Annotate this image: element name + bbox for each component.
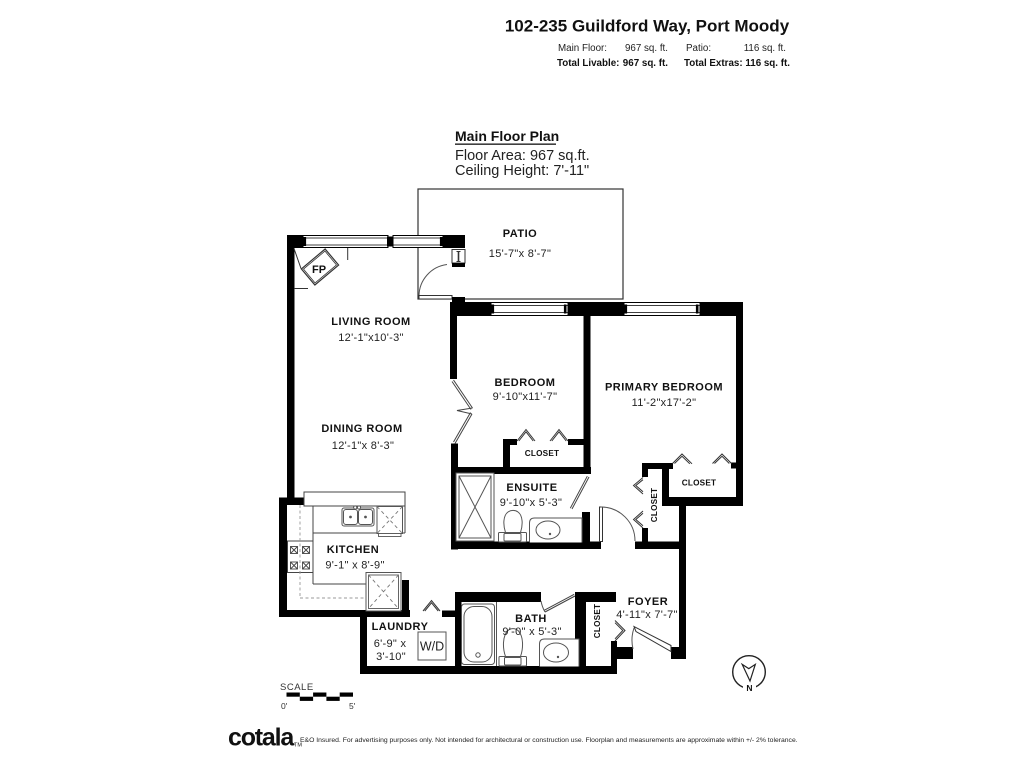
svg-text:102-235 Guildford Way, Port Mo: 102-235 Guildford Way, Port Moody xyxy=(505,17,790,36)
svg-text:BATH: BATH xyxy=(515,613,547,625)
svg-text:CLOSET: CLOSET xyxy=(525,449,559,458)
svg-text:9'-0" x 5'-3": 9'-0" x 5'-3" xyxy=(502,626,561,638)
svg-text:11'-2"x17'-2": 11'-2"x17'-2" xyxy=(632,397,697,409)
svg-text:ENSUITE: ENSUITE xyxy=(506,482,557,494)
svg-text:116 sq. ft.: 116 sq. ft. xyxy=(744,43,786,54)
svg-text:Total Extras: 116 sq. ft.: Total Extras: 116 sq. ft. xyxy=(684,58,790,69)
svg-text:PRIMARY BEDROOM: PRIMARY BEDROOM xyxy=(605,382,723,394)
svg-text:BEDROOM: BEDROOM xyxy=(495,377,556,389)
svg-text:0': 0' xyxy=(281,701,288,711)
svg-text:9'-10"x11'-7": 9'-10"x11'-7" xyxy=(493,391,558,403)
svg-text:15'-7"x 8'-7": 15'-7"x 8'-7" xyxy=(489,248,551,260)
svg-text:LAUNDRY: LAUNDRY xyxy=(372,621,429,633)
svg-text:N: N xyxy=(746,683,752,693)
svg-text:CLOSET: CLOSET xyxy=(650,488,659,522)
svg-text:Ceiling Height: 7'-11": Ceiling Height: 7'-11" xyxy=(455,163,589,179)
svg-text:9'-10"x 5'-3": 9'-10"x 5'-3" xyxy=(500,497,562,509)
svg-text:W/D: W/D xyxy=(420,640,444,654)
svg-text:6'-9" x: 6'-9" x xyxy=(374,638,407,650)
svg-text:E&O Insured. For advertising p: E&O Insured. For advertising purposes on… xyxy=(300,737,798,744)
svg-text:12'-1"x10'-3": 12'-1"x10'-3" xyxy=(338,332,403,344)
svg-text:Main Floor Plan: Main Floor Plan xyxy=(455,128,559,144)
svg-text:DINING ROOM: DINING ROOM xyxy=(321,423,402,435)
svg-text:12'-1"x 8'-3": 12'-1"x 8'-3" xyxy=(332,440,394,452)
svg-text:3'-10": 3'-10" xyxy=(376,651,406,663)
svg-text:967 sq. ft.: 967 sq. ft. xyxy=(623,58,668,69)
svg-text:Main Floor:: Main Floor: xyxy=(558,43,607,54)
svg-text:Floor Area: 967 sq.ft.: Floor Area: 967 sq.ft. xyxy=(455,148,590,164)
svg-text:Total Livable:: Total Livable: xyxy=(557,58,619,69)
svg-text:CLOSET: CLOSET xyxy=(682,479,716,488)
svg-text:LIVING ROOM: LIVING ROOM xyxy=(331,316,410,328)
svg-text:Patio:: Patio: xyxy=(686,43,711,54)
svg-text:cotala: cotala xyxy=(228,724,295,752)
svg-text:KITCHEN: KITCHEN xyxy=(327,544,379,556)
svg-text:967 sq. ft.: 967 sq. ft. xyxy=(625,43,668,54)
svg-text:4'-11"x 7'-7": 4'-11"x 7'-7" xyxy=(616,609,678,621)
svg-text:CLOSET: CLOSET xyxy=(593,604,602,638)
svg-text:PATIO: PATIO xyxy=(503,228,537,240)
svg-text:5': 5' xyxy=(349,701,356,711)
svg-text:FP: FP xyxy=(312,264,326,276)
svg-text:FOYER: FOYER xyxy=(628,596,668,608)
svg-text:SCALE: SCALE xyxy=(280,682,314,693)
svg-text:9'-1" x 8'-9": 9'-1" x 8'-9" xyxy=(325,560,384,572)
